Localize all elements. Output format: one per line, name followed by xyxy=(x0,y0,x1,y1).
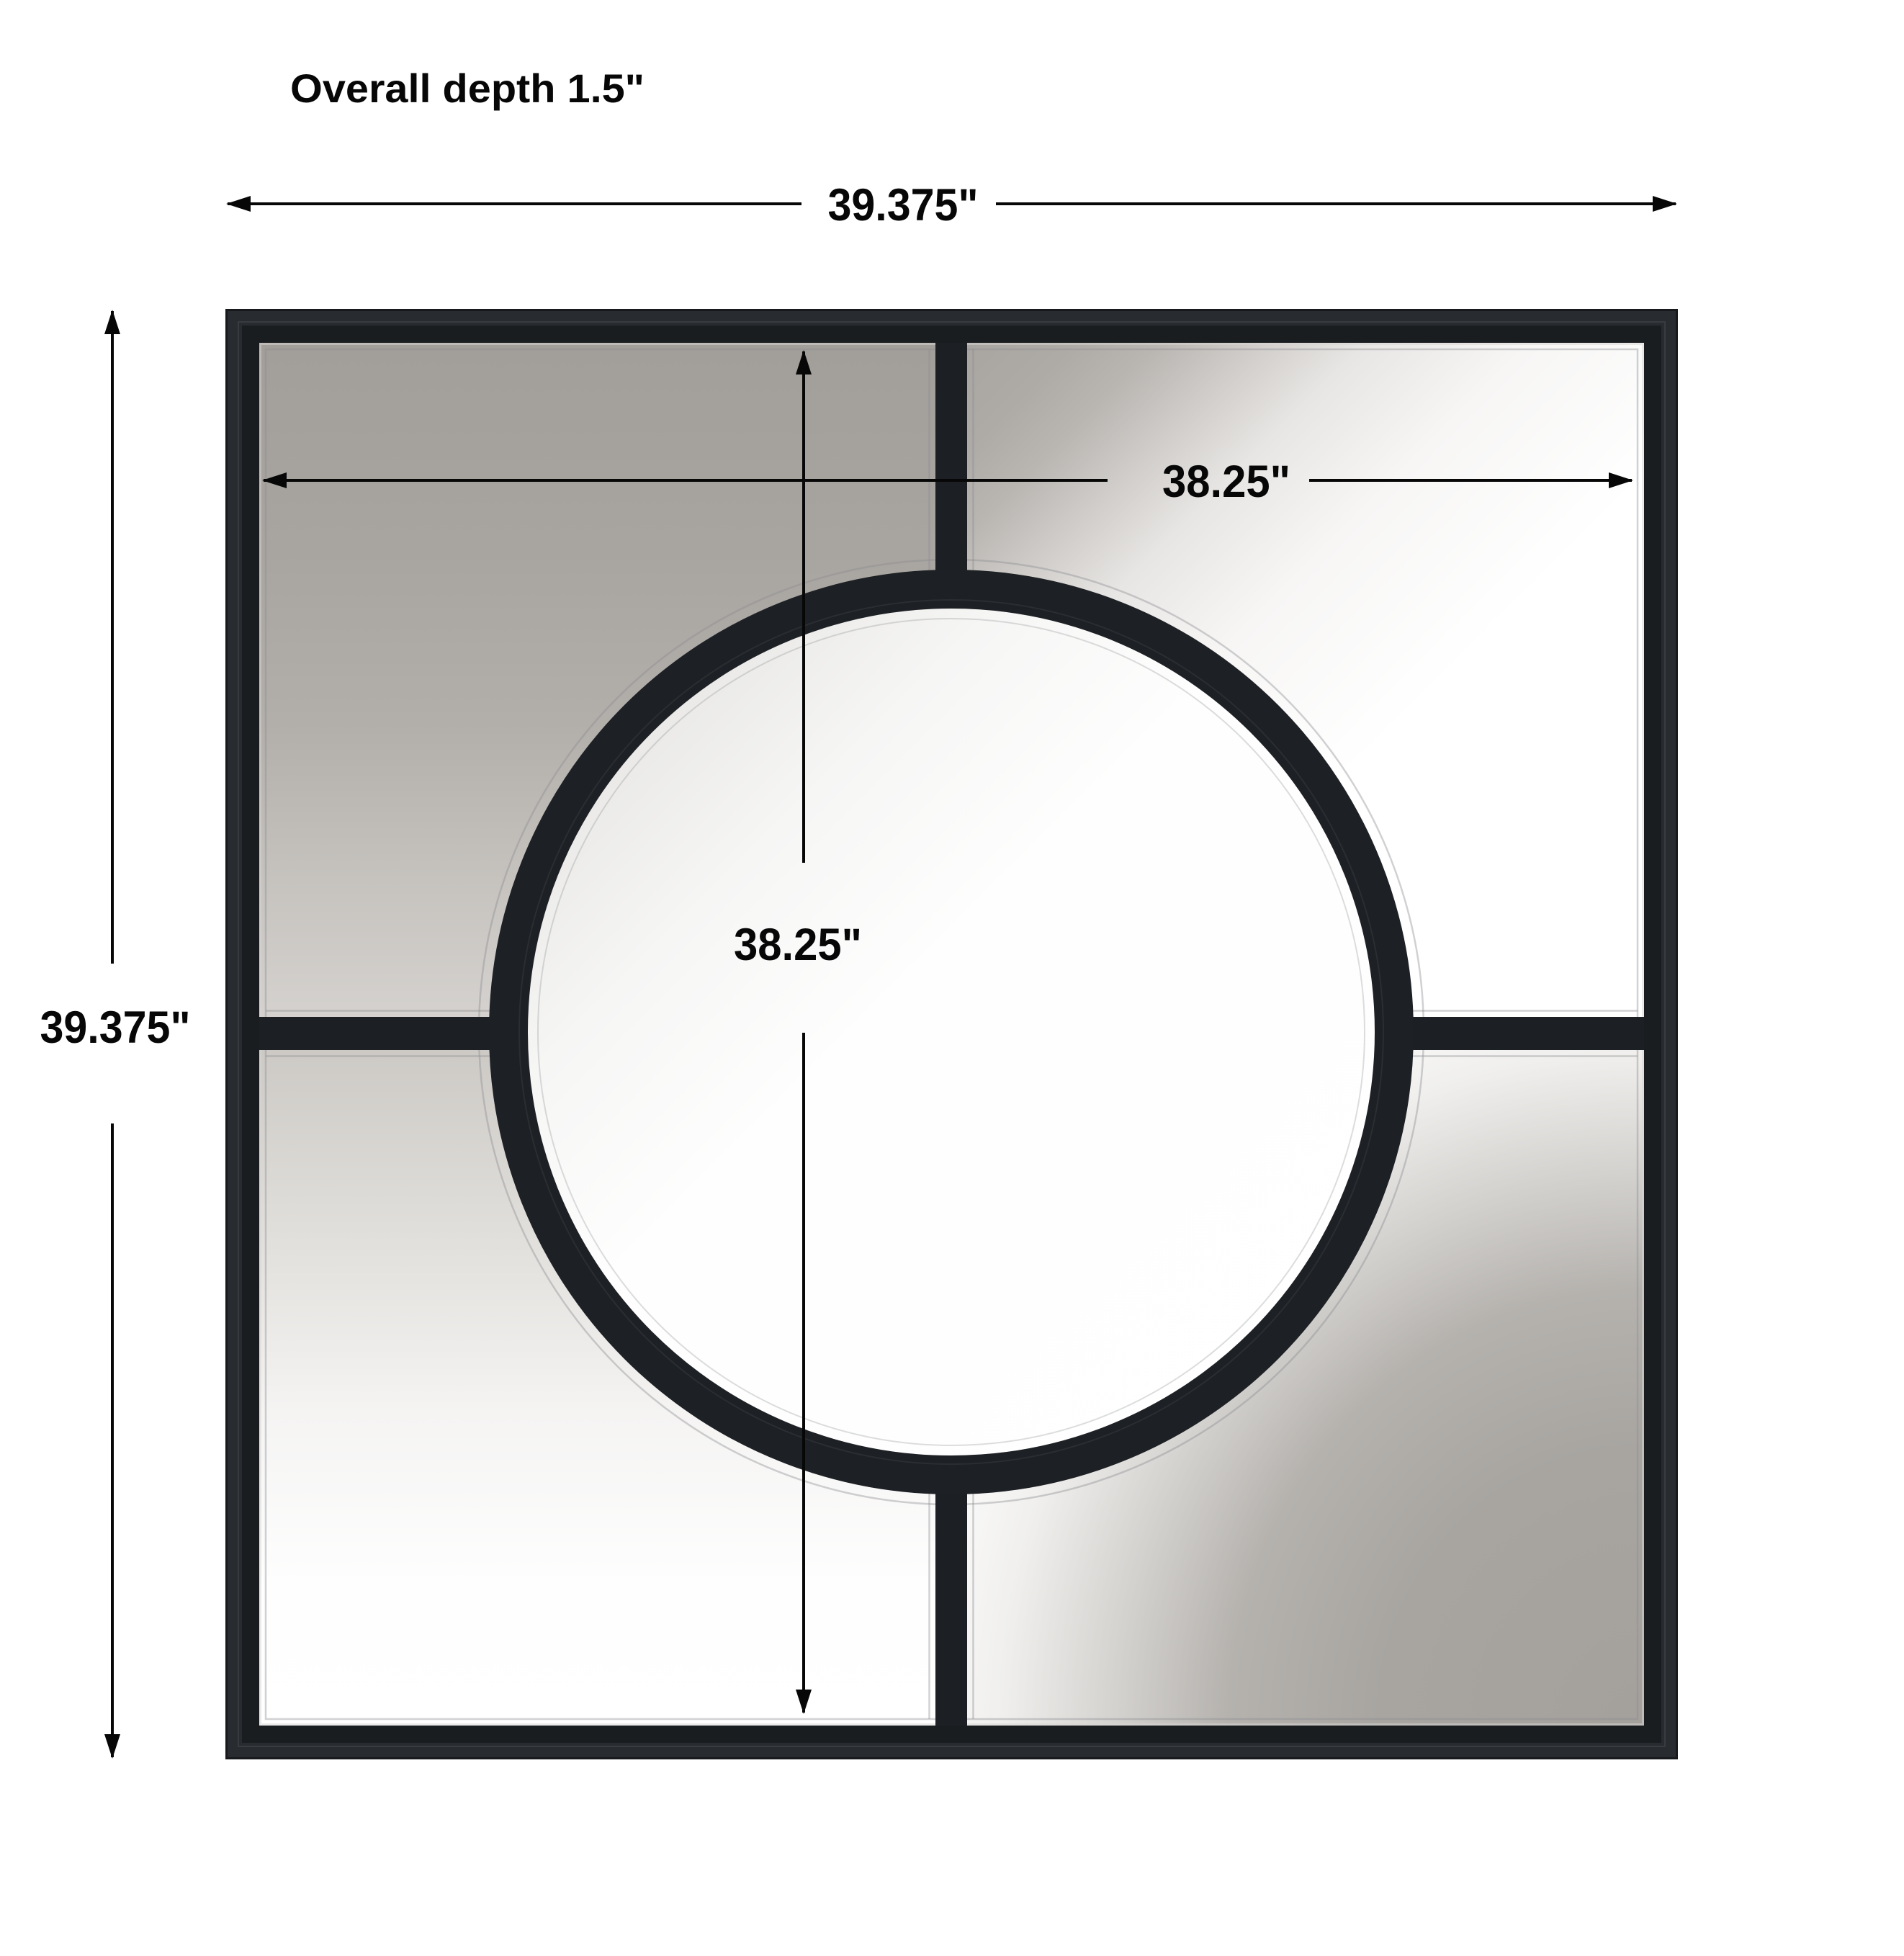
svg-text:39.375": 39.375" xyxy=(40,1002,191,1053)
svg-text:38.25": 38.25" xyxy=(734,920,862,970)
svg-text:Overall depth 1.5": Overall depth 1.5" xyxy=(290,66,645,111)
svg-text:38.25": 38.25" xyxy=(1162,457,1290,507)
svg-text:39.375": 39.375" xyxy=(828,180,979,230)
